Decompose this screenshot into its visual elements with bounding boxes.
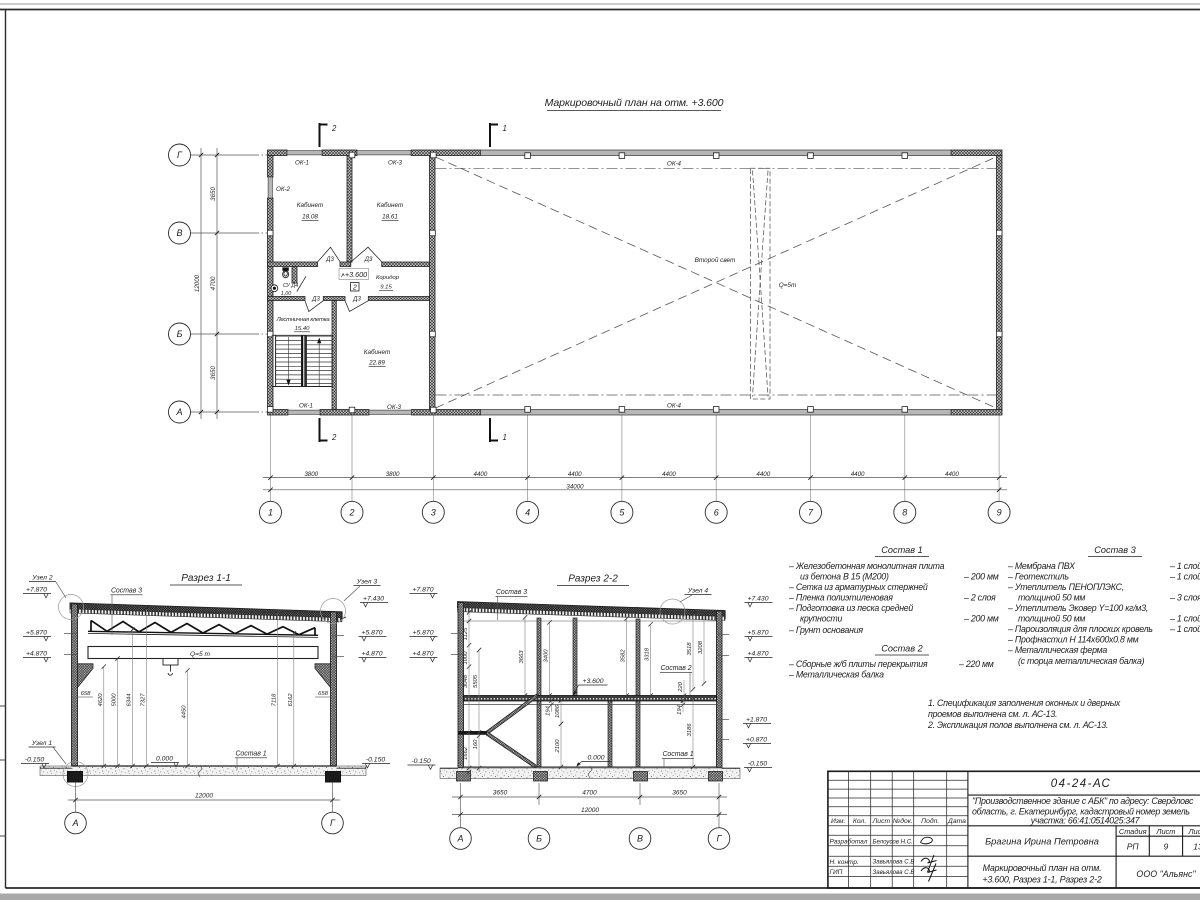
svg-text:+4.870: +4.870	[362, 651, 383, 658]
svg-text:3048: 3048	[463, 674, 469, 688]
svg-text:Разработал: Разработал	[830, 838, 868, 846]
svg-text:– Пленка полиэтиленовая: – Пленка полиэтиленовая	[788, 593, 893, 603]
svg-text:ОК-1: ОК-1	[295, 160, 309, 167]
svg-text:Состав 3: Состав 3	[111, 588, 142, 595]
svg-text:0.000: 0.000	[156, 756, 173, 763]
svg-text:Узел 3: Узел 3	[356, 579, 378, 586]
svg-text:Кабинет: Кабинет	[297, 201, 323, 209]
svg-text:Подп.: Подп.	[921, 817, 939, 825]
svg-text:6344: 6344	[127, 693, 133, 707]
svg-text:2. Экспликация полов выполнена: 2. Экспликация полов выполнена см. л. АС…	[927, 720, 1108, 730]
svg-text:– 200 мм: – 200 мм	[963, 614, 999, 624]
svg-text:– Металлическая ферма: – Металлическая ферма	[1007, 645, 1107, 655]
svg-text:4400: 4400	[756, 471, 770, 478]
svg-text:+7.870: +7.870	[413, 587, 434, 594]
svg-text:– 2 слоя: – 2 слоя	[963, 593, 996, 603]
svg-text:СУ Д4: СУ Д4	[283, 283, 298, 289]
svg-text:Завьялова С.В: Завьялова С.В	[873, 869, 915, 876]
svg-text:2: 2	[348, 508, 354, 518]
svg-text:+7.870: +7.870	[26, 587, 47, 594]
svg-text:4400: 4400	[568, 471, 582, 478]
svg-text:194: 194	[677, 704, 683, 715]
svg-text:– 3 слоя: – 3 слоя	[1169, 593, 1200, 603]
svg-text:РП: РП	[1127, 842, 1140, 852]
svg-text:(с торца металлическая балка): (с торца металлическая балка)	[1018, 656, 1145, 666]
svg-text:Б: Б	[536, 834, 542, 844]
svg-text:658: 658	[318, 691, 329, 697]
svg-text:3650: 3650	[493, 790, 508, 797]
svg-text:Состав 2: Состав 2	[660, 665, 691, 672]
svg-text:Кабинет: Кабинет	[364, 348, 390, 356]
svg-text:6162: 6162	[288, 693, 294, 707]
svg-text:160: 160	[473, 739, 479, 750]
svg-text:– Грунт основания: – Грунт основания	[788, 625, 863, 635]
svg-text:3400: 3400	[544, 649, 550, 663]
svg-text:-0.150: -0.150	[25, 757, 44, 764]
svg-text:Состав 1: Состав 1	[881, 545, 922, 555]
svg-text:Д3: Д3	[325, 257, 334, 263]
svg-text:5505: 5505	[473, 674, 479, 688]
svg-text:– Утеплитель Эковер Y=100 кг/м: – Утеплитель Эковер Y=100 кг/м3,	[1007, 603, 1148, 613]
svg-text:2: 2	[331, 124, 337, 133]
svg-text:участка: 66:41:0514025:347: участка: 66:41:0514025:347	[1030, 816, 1141, 826]
svg-text:Брагина Ирина Петровна: Брагина Ирина Петровна	[985, 837, 1099, 847]
svg-text:Белоусов Н.С.: Белоусов Н.С.	[873, 838, 913, 845]
svg-text:– Подготовка из песка средней: – Подготовка из песка средней	[788, 603, 913, 613]
svg-text:А: А	[71, 818, 78, 828]
svg-text:22.89: 22.89	[368, 360, 385, 367]
svg-text:1: 1	[268, 508, 273, 518]
svg-text:2: 2	[352, 285, 357, 292]
svg-text:658: 658	[81, 691, 92, 697]
svg-text:4620: 4620	[98, 693, 104, 707]
svg-text:А: А	[456, 834, 463, 844]
svg-text:3800: 3800	[304, 471, 318, 478]
svg-text:– Мембрана ПВХ: – Мембрана ПВХ	[1007, 561, 1076, 571]
svg-text:– Сетка из арматурных стержней: – Сетка из арматурных стержней	[788, 582, 928, 592]
svg-text:+4.870: +4.870	[26, 651, 47, 658]
svg-text:Маркировочный план на отм.: Маркировочный план на отм.	[983, 863, 1102, 873]
svg-text:1: 1	[503, 124, 507, 133]
svg-text:Д3: Д3	[364, 257, 373, 263]
svg-text:8: 8	[902, 508, 907, 518]
svg-text:ОК-1: ОК-1	[299, 403, 313, 410]
svg-text:3186: 3186	[687, 723, 693, 737]
svg-text:ОК-3: ОК-3	[387, 404, 402, 411]
svg-text:Кабинет: Кабинет	[377, 201, 403, 209]
svg-text:Лестничная клетка: Лестничная клетка	[276, 317, 331, 323]
svg-text:Лист: Лист	[872, 818, 891, 825]
svg-text:– Сборные ж/б плиты перекрытия: – Сборные ж/б плиты перекрытия	[788, 659, 928, 669]
svg-text:ОК-4: ОК-4	[667, 161, 682, 168]
svg-text:3650: 3650	[210, 187, 217, 201]
svg-text:3318: 3318	[645, 647, 651, 661]
svg-text:– Геотекстиль: – Геотекстиль	[1007, 572, 1069, 582]
svg-text:3518: 3518	[687, 642, 693, 656]
svg-text:проемов выполнена см. л. АС-13: проемов выполнена см. л. АС-13.	[928, 709, 1057, 719]
svg-text:Коридор: Коридор	[376, 275, 400, 281]
svg-text:Q=5m: Q=5m	[779, 282, 797, 289]
svg-text:-0.150: -0.150	[366, 757, 385, 764]
svg-text:194: 194	[546, 705, 552, 716]
svg-text:Лист: Лист	[1187, 827, 1200, 836]
svg-text:1. Спецификация заполнения око: 1. Спецификация заполнения оконных и две…	[928, 698, 1121, 708]
svg-text:крупности: крупности	[800, 614, 842, 624]
svg-text:3208: 3208	[698, 640, 704, 654]
svg-text:4450: 4450	[182, 705, 188, 719]
svg-text:Состав 3: Состав 3	[496, 589, 527, 596]
svg-text:+5.870: +5.870	[748, 630, 769, 637]
svg-text:Состав 2: Состав 2	[881, 644, 922, 654]
svg-text:"Производственное здание с АБК: "Производственное здание с АБК" по адрес…	[972, 796, 1194, 806]
svg-text:3800: 3800	[386, 471, 400, 478]
svg-text:1000: 1000	[463, 651, 469, 665]
svg-text:3582: 3582	[621, 649, 627, 663]
svg-text:Кол.: Кол.	[853, 818, 866, 825]
svg-text:1: 1	[503, 433, 507, 442]
svg-text:В: В	[176, 228, 182, 238]
svg-text:Узел 1: Узел 1	[31, 740, 53, 747]
svg-text:ОК-3: ОК-3	[388, 160, 403, 167]
svg-text:12000: 12000	[195, 793, 213, 800]
svg-text:+3.600, Разрез 1-1, Разрез 2-2: +3.600, Разрез 1-1, Разрез 2-2	[982, 875, 1101, 885]
svg-text:+7.430: +7.430	[363, 596, 384, 603]
svg-text:1662: 1662	[463, 746, 469, 760]
svg-text:Изм.: Изм.	[831, 818, 846, 825]
svg-text:6: 6	[714, 508, 719, 518]
svg-text:ООО "Альянс": ООО "Альянс"	[1136, 869, 1196, 879]
svg-text:04-24-АС: 04-24-АС	[1051, 778, 1112, 790]
svg-text:Узел 2: Узел 2	[31, 575, 53, 582]
svg-text:– Пароизоляция для плоских кро: – Пароизоляция для плоских кровель	[1007, 624, 1153, 634]
svg-text:4400: 4400	[851, 471, 865, 478]
svg-text:Д3: Д3	[352, 297, 361, 303]
svg-text:Узел 4: Узел 4	[687, 588, 709, 595]
svg-text:+1.870: +1.870	[746, 717, 767, 724]
svg-text:220: 220	[678, 681, 684, 693]
svg-text:12000: 12000	[581, 807, 599, 814]
svg-text:34000: 34000	[566, 483, 584, 490]
svg-text:1,00: 1,00	[281, 291, 292, 297]
svg-text:2100: 2100	[555, 739, 561, 754]
svg-text:9: 9	[997, 508, 1002, 518]
svg-text:Состав 1: Состав 1	[235, 751, 266, 758]
svg-text:4400: 4400	[945, 471, 959, 478]
svg-text:№док.: №док.	[893, 817, 913, 825]
svg-text:2: 2	[331, 433, 337, 442]
svg-text:13: 13	[1193, 842, 1200, 852]
svg-text:Q=5 m: Q=5 m	[190, 651, 210, 658]
svg-text:9.15: 9.15	[380, 285, 392, 291]
svg-text:+5.870: +5.870	[413, 630, 434, 637]
svg-text:Д3: Д3	[311, 297, 320, 303]
svg-text:Маркировочный план на отм. +3.: Маркировочный план на отм. +3.600	[545, 97, 724, 109]
svg-text:1086: 1086	[555, 704, 561, 718]
svg-text:3650: 3650	[210, 366, 217, 380]
svg-text:– Профнастил Н 114х600х0.8 мм: – Профнастил Н 114х600х0.8 мм	[1007, 635, 1139, 645]
svg-text:Состав 3: Состав 3	[1094, 545, 1136, 555]
svg-text:– Металлическая балка: – Металлическая балка	[788, 670, 884, 680]
svg-text:+3.600: +3.600	[583, 678, 604, 685]
svg-text:– 1 слой: – 1 слой	[1169, 614, 1200, 624]
svg-text:5000: 5000	[112, 693, 118, 707]
svg-text:– 1 слой: – 1 слой	[1169, 561, 1200, 571]
svg-text:А: А	[175, 407, 182, 417]
svg-text:– 1 слой: – 1 слой	[1169, 572, 1200, 582]
svg-text:15.40: 15.40	[295, 326, 310, 332]
svg-text:3663: 3663	[519, 650, 525, 664]
svg-text:из бетона В 15 (М200): из бетона В 15 (М200)	[800, 572, 889, 582]
svg-text:7118: 7118	[272, 693, 278, 706]
svg-text:Н. контр.: Н. контр.	[830, 859, 860, 866]
svg-text:– Железобетонная монолитная п: – Железобетонная монолитная плита	[788, 561, 945, 571]
svg-text:толщиной 50 мм: толщиной 50 мм	[1018, 614, 1085, 624]
svg-text:Второй свет: Второй свет	[695, 256, 736, 264]
svg-text:4400: 4400	[662, 471, 676, 478]
svg-text:толщиной 50 мм: толщиной 50 мм	[1018, 593, 1085, 603]
svg-text:– 1 слой: – 1 слой	[1169, 624, 1200, 634]
svg-text:ГИП: ГИП	[830, 869, 843, 876]
svg-text:3650: 3650	[672, 790, 687, 797]
svg-text:+5.870: +5.870	[26, 630, 47, 637]
svg-text:Разрез 2-2: Разрез 2-2	[568, 574, 618, 585]
svg-text:ОК-4: ОК-4	[667, 403, 682, 410]
svg-text:0.000: 0.000	[587, 755, 604, 762]
svg-text:4400: 4400	[474, 471, 488, 478]
svg-text:Состав 1: Состав 1	[662, 751, 693, 758]
svg-text:+5.870: +5.870	[362, 630, 383, 637]
svg-text:3: 3	[431, 508, 436, 518]
svg-text:Разрез 1-1: Разрез 1-1	[181, 573, 231, 584]
svg-text:Б: Б	[177, 329, 183, 339]
svg-text:-0.150: -0.150	[411, 758, 430, 765]
svg-text:– Утеплитель ПЕНОПЛЭКС,: – Утеплитель ПЕНОПЛЭКС,	[1007, 582, 1124, 592]
svg-text:+4.870: +4.870	[748, 651, 769, 658]
svg-text:4700: 4700	[210, 276, 217, 290]
svg-text:+4.870: +4.870	[413, 651, 434, 658]
svg-text:18.08: 18.08	[302, 214, 318, 221]
svg-text:– 220 мм: – 220 мм	[958, 659, 994, 669]
svg-text:Завьялова С.В: Завьялова С.В	[873, 859, 915, 866]
svg-text:– 200 мм: – 200 мм	[963, 572, 999, 582]
svg-text:9: 9	[1164, 842, 1169, 852]
svg-text:В: В	[637, 834, 643, 844]
svg-text:Стадия: Стадия	[1119, 827, 1147, 836]
svg-text:18.61: 18.61	[382, 214, 398, 221]
svg-text:+7.430: +7.430	[748, 596, 769, 603]
svg-text:+3.600: +3.600	[345, 270, 367, 279]
svg-text:12000: 12000	[194, 274, 201, 292]
svg-text:4700: 4700	[582, 790, 597, 797]
svg-text:Лист: Лист	[1155, 827, 1175, 836]
svg-text:-0.150: -0.150	[748, 761, 767, 768]
svg-text:Дата: Дата	[947, 818, 966, 825]
svg-text:ОК-2: ОК-2	[276, 186, 291, 193]
svg-text:7327: 7327	[140, 693, 146, 707]
svg-text:+0.870: +0.870	[746, 737, 767, 744]
svg-text:4: 4	[525, 508, 530, 518]
